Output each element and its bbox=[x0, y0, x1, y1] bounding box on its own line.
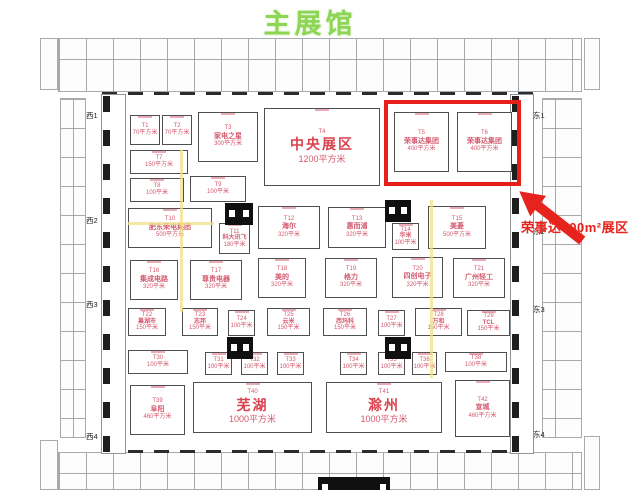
booth-id: T36 bbox=[419, 357, 429, 364]
booth-id: T23 bbox=[195, 312, 205, 319]
booth-area: 500平方米 bbox=[443, 232, 471, 240]
booth-t41: T41滁州1000平方米 bbox=[326, 382, 442, 433]
booth-area: 1200平方米 bbox=[298, 154, 345, 165]
booth-t33: T33100平米 bbox=[277, 352, 304, 375]
booth-name: 芜湖 bbox=[237, 397, 269, 415]
booth-name: 海尔 bbox=[282, 223, 296, 232]
booth-id: T13 bbox=[352, 216, 362, 224]
booth-area: 100平米 bbox=[230, 323, 252, 330]
booth-t26: T26西玛科150平米 bbox=[323, 308, 367, 336]
structural-column-icon bbox=[385, 337, 411, 359]
structural-column-icon bbox=[227, 337, 253, 359]
booth-area: 320平米 bbox=[468, 282, 490, 290]
booth-name: 科大讯飞 bbox=[222, 235, 246, 242]
bottom-entrance-block bbox=[318, 477, 390, 490]
booth-area: 320平米 bbox=[340, 282, 362, 290]
booth-area: 180平米 bbox=[223, 242, 245, 249]
booth-t4: T4中央展区1200平方米 bbox=[264, 108, 380, 186]
booth-t39: T39阜阳460平方米 bbox=[130, 385, 185, 435]
booth-area: 150平米 bbox=[334, 325, 356, 332]
booth-t38: T38100平米 bbox=[445, 352, 507, 372]
booth-id: T34 bbox=[348, 357, 358, 364]
booth-id: T40 bbox=[247, 389, 257, 397]
booth-id: T38 bbox=[471, 355, 481, 362]
booth-id: T18 bbox=[277, 266, 287, 274]
booth-area: 100平米 bbox=[394, 240, 416, 247]
booth-name: 四创电子 bbox=[404, 273, 432, 282]
booth-area: 150平米 bbox=[477, 326, 499, 333]
booth-id: T26 bbox=[340, 312, 350, 319]
booth-area: 300平方米 bbox=[214, 141, 242, 149]
booth-id: T29 bbox=[483, 313, 493, 320]
gate-label-7: 东3 bbox=[533, 304, 545, 315]
booth-area: 320平米 bbox=[278, 232, 300, 240]
booth-t19: T19格力320平米 bbox=[325, 258, 377, 298]
booth-area: 1000平方米 bbox=[229, 414, 276, 425]
gate-label-4: 西4 bbox=[86, 431, 98, 442]
booth-area: 70平方米 bbox=[133, 130, 158, 137]
booth-id: T8 bbox=[153, 183, 160, 190]
highlighter-line bbox=[180, 150, 183, 312]
booth-id: T3 bbox=[224, 125, 231, 133]
booth-t15: T15美菱500平方米 bbox=[428, 206, 486, 249]
booth-area: 320平米 bbox=[406, 282, 428, 290]
booth-name: 中央展区 bbox=[290, 136, 354, 154]
booth-area: 100平米 bbox=[147, 362, 169, 369]
booth-id: T1 bbox=[141, 123, 148, 130]
booth-id: T19 bbox=[346, 266, 356, 274]
booth-t12: T12海尔320平米 bbox=[258, 206, 320, 249]
booth-name: 华米 bbox=[399, 233, 411, 240]
booth-id: T9 bbox=[214, 182, 221, 189]
booth-id: T15 bbox=[452, 216, 462, 224]
booth-t22: T22巢湖市150平米 bbox=[128, 308, 166, 336]
booth-area: 150平米 bbox=[277, 325, 299, 332]
booth-area: 100平米 bbox=[465, 362, 487, 369]
booth-t20: T20四创电子320平米 bbox=[392, 257, 443, 298]
booth-id: T39 bbox=[152, 398, 162, 406]
gate-label-2: 西2 bbox=[86, 215, 98, 226]
booth-id: T27 bbox=[386, 316, 396, 323]
booth-t42: T42宣城460平方米 bbox=[455, 380, 510, 437]
gate-label-8: 东4 bbox=[533, 429, 545, 440]
booth-t11: T11科大讯飞180平米 bbox=[219, 223, 250, 254]
booth-t8: T8100平米 bbox=[130, 178, 184, 202]
booth-id: T24 bbox=[236, 316, 246, 323]
booth-t29: T29TCL150平米 bbox=[467, 310, 510, 336]
booth-area: 320平米 bbox=[205, 284, 227, 292]
booth-name: 惠而浦 bbox=[347, 223, 368, 232]
booth-t17: T17尊贵电器320平米 bbox=[190, 260, 242, 300]
booth-area: 100平米 bbox=[146, 190, 168, 197]
booth-t24: T24100平米 bbox=[228, 310, 255, 336]
highlighter-line bbox=[430, 200, 433, 378]
booth-area: 320平米 bbox=[143, 284, 165, 292]
booth-id: T30 bbox=[153, 355, 163, 362]
exhibition-floorplan: 主展馆 T170平方米T270平方米T3家电之星300平方米T4中央展区1200… bbox=[0, 0, 640, 495]
booth-area: 100平米 bbox=[243, 364, 265, 371]
booth-area: 70平方米 bbox=[165, 130, 190, 137]
booth-id: T33 bbox=[285, 357, 295, 364]
booth-area: 100平米 bbox=[279, 364, 301, 371]
booth-t1: T170平方米 bbox=[130, 115, 160, 145]
floor-area: T170平方米T270平方米T3家电之星300平方米T4中央展区1200平方米T… bbox=[0, 0, 640, 495]
booth-t21: T21广州轻工320平米 bbox=[453, 258, 505, 298]
booth-t25: T25云米150平米 bbox=[267, 308, 310, 336]
booth-area: 320平米 bbox=[271, 282, 293, 290]
rongshida-highlight-box bbox=[384, 100, 521, 186]
booth-id: T16 bbox=[149, 268, 159, 276]
booth-id: T4 bbox=[318, 129, 325, 137]
structural-column-icon bbox=[385, 200, 411, 222]
booth-t2: T270平方米 bbox=[162, 115, 192, 145]
booth-area: 100平米 bbox=[380, 364, 402, 371]
gate-label-3: 西3 bbox=[86, 299, 98, 310]
booth-t14: T14华米100平米 bbox=[392, 223, 419, 250]
booth-t27: T27100平米 bbox=[378, 310, 405, 336]
booth-area: 100平米 bbox=[207, 364, 229, 371]
structural-column-icon bbox=[225, 203, 253, 225]
booth-id: T7 bbox=[155, 155, 162, 162]
highlighter-line bbox=[128, 222, 214, 225]
booth-id: T21 bbox=[474, 266, 484, 274]
booth-id: T12 bbox=[284, 216, 294, 224]
booth-area: 100平米 bbox=[342, 364, 364, 371]
booth-name: 滁州 bbox=[368, 397, 400, 415]
booth-id: T2 bbox=[173, 123, 180, 130]
booth-area: 150平米 bbox=[136, 325, 158, 332]
booth-t16: T16集成电路320平米 bbox=[130, 260, 178, 300]
booth-id: T31 bbox=[213, 357, 223, 364]
booth-area: 150平方米 bbox=[145, 162, 173, 169]
booth-name: 美菱 bbox=[450, 223, 464, 232]
booth-name: 宣城 bbox=[476, 404, 490, 413]
gate-label-5: 东1 bbox=[533, 110, 545, 121]
booth-t13: T13惠而浦320平米 bbox=[328, 207, 386, 248]
booth-area: 100平米 bbox=[380, 323, 402, 330]
gate-label-1: 西1 bbox=[86, 110, 98, 121]
booth-area: 150平米 bbox=[189, 325, 211, 332]
booth-t40: T40芜湖1000平方米 bbox=[193, 382, 312, 433]
booth-t34: T34100平米 bbox=[340, 352, 367, 375]
booth-id: T28 bbox=[433, 312, 443, 319]
booth-t3: T3家电之星300平方米 bbox=[198, 112, 258, 162]
booth-id: T22 bbox=[142, 312, 152, 319]
booth-id: T42 bbox=[477, 397, 487, 405]
booth-t28: T28万和150平米 bbox=[415, 308, 462, 336]
booth-t18: T18美的320平米 bbox=[258, 258, 306, 298]
booth-t30: T30100平米 bbox=[128, 350, 188, 374]
booth-area: 100平米 bbox=[207, 189, 229, 196]
booth-area: 320平米 bbox=[346, 232, 368, 240]
booth-t10: T10肥东荣电集团500平方米 bbox=[128, 208, 212, 248]
booth-t36: T36100平米 bbox=[412, 352, 437, 375]
booth-id: T20 bbox=[412, 266, 422, 274]
booth-t9: T9100平米 bbox=[190, 176, 246, 202]
booth-area: 1000平方米 bbox=[360, 414, 407, 425]
booth-id: T41 bbox=[379, 389, 389, 397]
booth-area: 460平方米 bbox=[143, 414, 171, 422]
booth-id: T25 bbox=[283, 312, 293, 319]
booth-area: 460平方米 bbox=[468, 413, 496, 421]
booth-id: T17 bbox=[211, 268, 221, 276]
booth-t23: T23志邦150平米 bbox=[182, 308, 218, 336]
